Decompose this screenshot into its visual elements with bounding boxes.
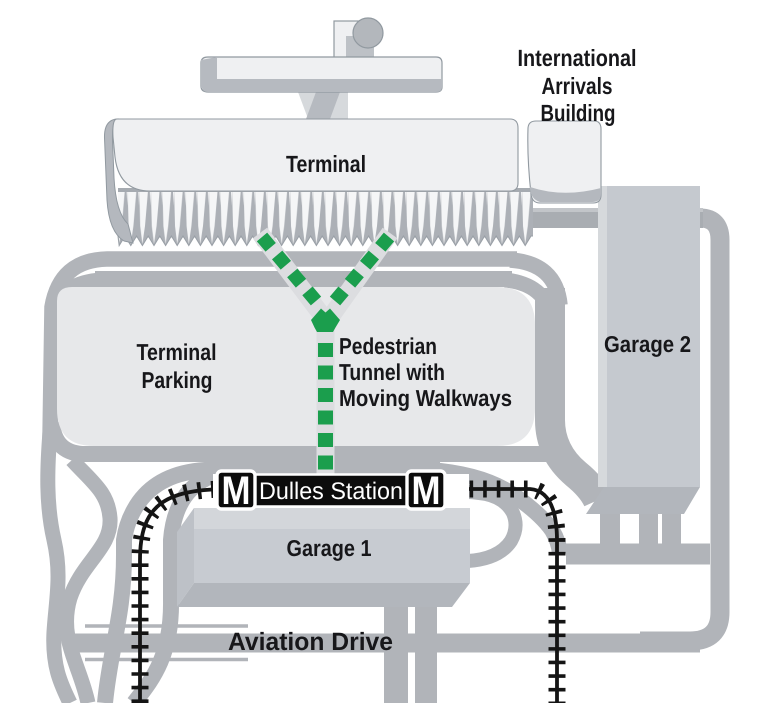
svg-text:Dulles Station: Dulles Station bbox=[259, 478, 403, 505]
svg-text:Terminal: Terminal bbox=[286, 151, 366, 177]
svg-text:Building: Building bbox=[541, 100, 616, 126]
svg-text:Tunnel with: Tunnel with bbox=[339, 359, 445, 385]
svg-text:M: M bbox=[412, 469, 441, 513]
svg-text:Arrivals: Arrivals bbox=[542, 73, 613, 99]
svg-text:Garage 1: Garage 1 bbox=[287, 535, 372, 561]
svg-text:M: M bbox=[222, 469, 251, 513]
svg-text:International: International bbox=[518, 45, 637, 71]
svg-text:Garage 2: Garage 2 bbox=[604, 331, 691, 357]
svg-text:Parking: Parking bbox=[142, 367, 213, 393]
svg-text:Pedestrian: Pedestrian bbox=[339, 333, 437, 359]
svg-text:Terminal: Terminal bbox=[137, 339, 217, 365]
svg-text:Aviation Drive: Aviation Drive bbox=[228, 628, 393, 656]
svg-text:Moving Walkways: Moving Walkways bbox=[339, 385, 512, 411]
